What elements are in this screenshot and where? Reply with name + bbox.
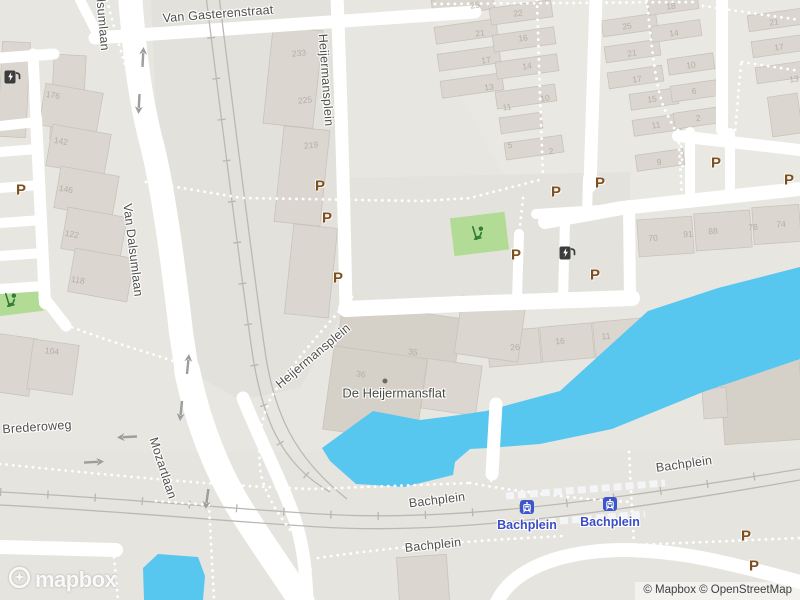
building [263,26,323,129]
basemap-tiles [0,0,800,600]
mapbox-logo-text: mapbox [35,567,116,593]
building [284,224,337,318]
building [752,204,800,244]
building [767,93,800,137]
building [27,339,80,395]
building [694,210,752,251]
building [702,387,728,419]
mapbox-logo-icon [8,566,31,594]
attribution-text: © Mapbox © OpenStreetMap [643,584,792,596]
map-canvas[interactable]: Van GasterenstraatVan DalsumlaanHeijerma… [0,0,800,600]
building [68,248,135,302]
mapbox-logo[interactable]: mapbox [8,566,116,594]
attribution[interactable]: © Mapbox © OpenStreetMap [635,582,800,600]
building [274,126,330,226]
building [396,554,449,600]
building [46,124,111,176]
building [421,358,482,415]
building [540,323,595,362]
building [637,216,694,257]
